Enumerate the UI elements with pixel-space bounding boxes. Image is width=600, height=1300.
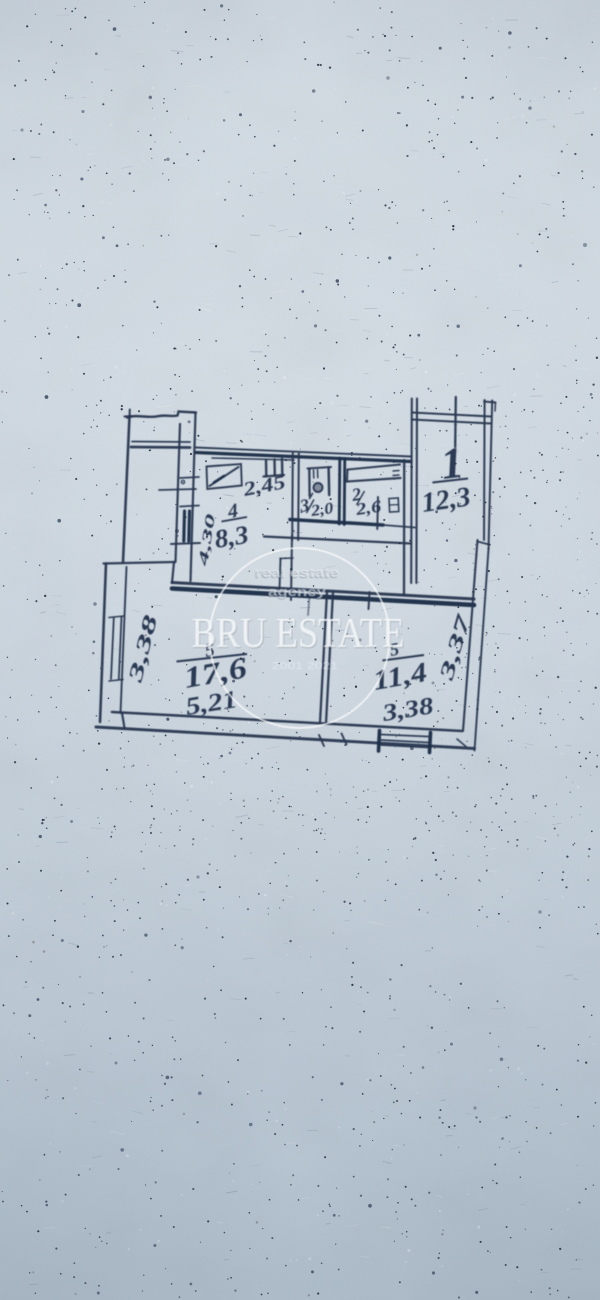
svg-text:real estate: real estate — [255, 565, 339, 580]
svg-text:2001 2021: 2001 2021 — [272, 661, 339, 672]
svg-text:8,3: 8,3 — [212, 520, 250, 554]
svg-text:BRU ESTATE: BRU ESTATE — [192, 611, 405, 657]
svg-text:agency: agency — [268, 584, 327, 599]
svg-text:2,6: 2,6 — [354, 497, 383, 520]
svg-text:2,0: 2,0 — [309, 500, 334, 520]
